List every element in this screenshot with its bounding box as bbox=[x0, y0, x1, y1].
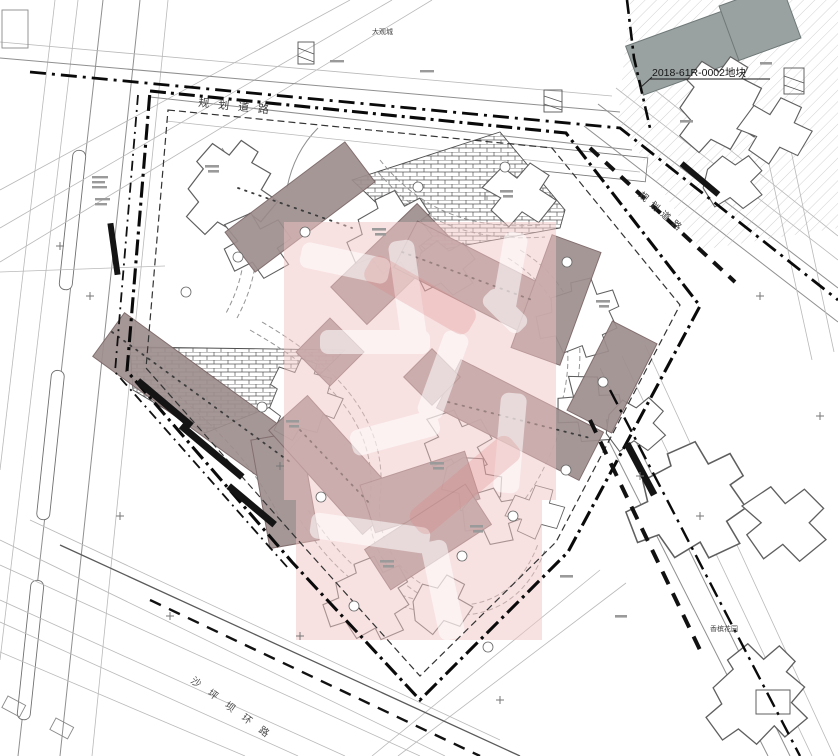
parcel-code-label: 2018-61R-0002地块 bbox=[652, 66, 746, 79]
site-plan-drawing: 大观城 规划道路 规划道路 沙坪坝环路 2018-61R-0002地块 香槟花园 bbox=[0, 0, 838, 756]
neighbor-parcel-northeast bbox=[618, 0, 838, 250]
road-label-southwest: 沙坪坝环路 bbox=[188, 674, 281, 746]
town-name-label: 大观城 bbox=[372, 27, 393, 36]
road-centerline-se bbox=[610, 390, 800, 756]
watermark bbox=[284, 222, 556, 642]
site-plan-canvas: 大观城 规划道路 规划道路 沙坪坝环路 2018-61R-0002地块 香槟花园 bbox=[0, 0, 838, 756]
neighborhood-label: 香槟花园 bbox=[710, 624, 738, 633]
